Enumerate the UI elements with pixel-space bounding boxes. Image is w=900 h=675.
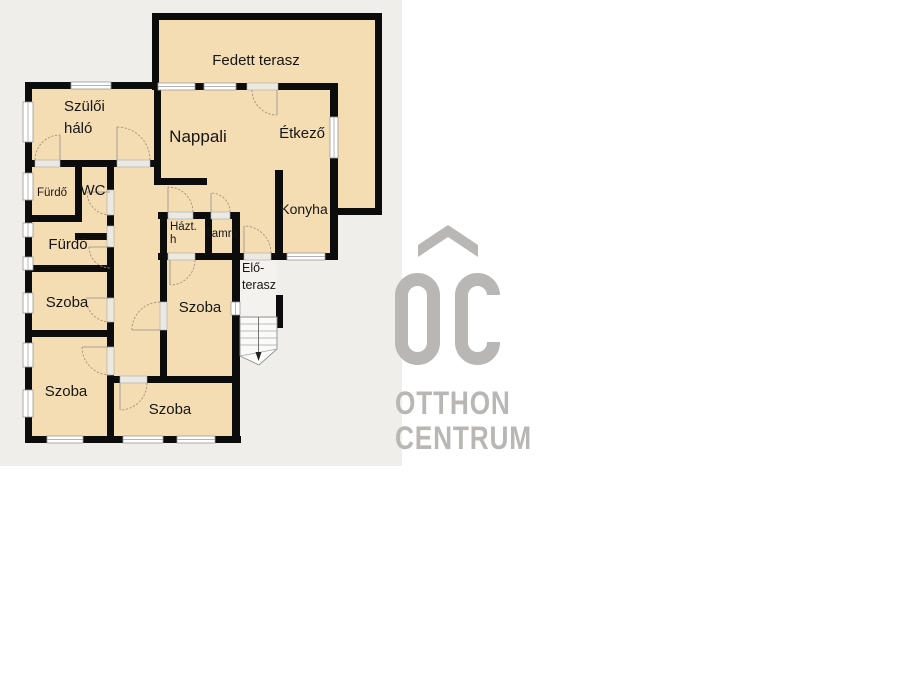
logo-letter-c-gap [487, 295, 504, 342]
logo-monogram-oc [402, 280, 494, 359]
room-label-konyha: Konyha [280, 202, 327, 217]
staircase [240, 317, 277, 365]
logo-wordmark-otthon: OTTHON [395, 385, 511, 422]
room-label-szoba-kozepso: Szoba [179, 300, 222, 317]
room-label-elo-terasz-line1: Elő- [242, 262, 264, 276]
room-label-nappali: Nappali [169, 128, 227, 147]
room-label-haztartasi-line1: Házt. [170, 221, 197, 234]
room-label-haztartasi-line2: h [170, 234, 176, 247]
floorplan-page: Fedett terasz Szülői háló Nappali Étkező… [0, 0, 900, 675]
room-label-szuloi-halo-line1: Szülői [64, 99, 105, 116]
room-label-elo-terasz-line2: terasz [242, 279, 276, 293]
room-label-wc: WC [81, 183, 106, 200]
room-label-szoba-bal-also: Szoba [45, 384, 88, 401]
logo-roof-chevron-icon [418, 225, 478, 257]
floorplan-drawing [0, 0, 900, 675]
room-label-szuloi-halo-line2: háló [64, 121, 92, 138]
room-label-szoba-also: Szoba [149, 402, 192, 419]
logo-wordmark-centrum: CENTRUM [395, 420, 532, 457]
room-label-kamra: Kamra [204, 228, 238, 241]
logo-letter-o [402, 280, 434, 359]
room-label-szoba-bal-felso: Szoba [46, 295, 89, 312]
room-label-etkezo: Étkező [279, 126, 325, 143]
room-label-furdo: Fürdő [48, 237, 87, 254]
room-label-furdo-kis: Fürdő [37, 187, 67, 200]
room-label-fedett-terasz: Fedett terasz [212, 53, 300, 70]
